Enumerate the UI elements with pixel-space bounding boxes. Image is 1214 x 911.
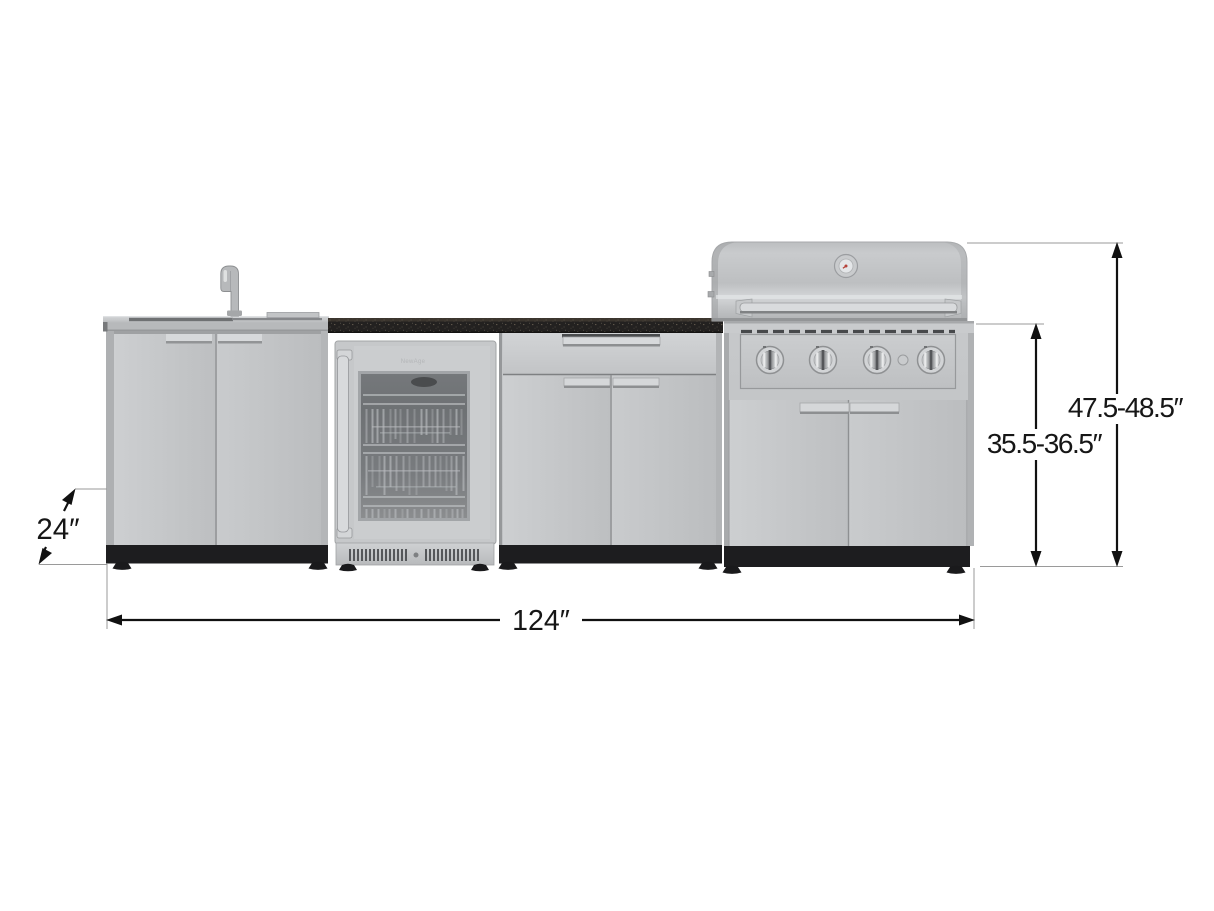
svg-text:35.5-36.5″: 35.5-36.5″ [987,428,1103,459]
svg-text:NewAge: NewAge [401,359,426,365]
svg-text:24″: 24″ [36,513,79,546]
svg-text:124″: 124″ [512,605,570,637]
svg-text:47.5-48.5″: 47.5-48.5″ [1068,392,1184,423]
